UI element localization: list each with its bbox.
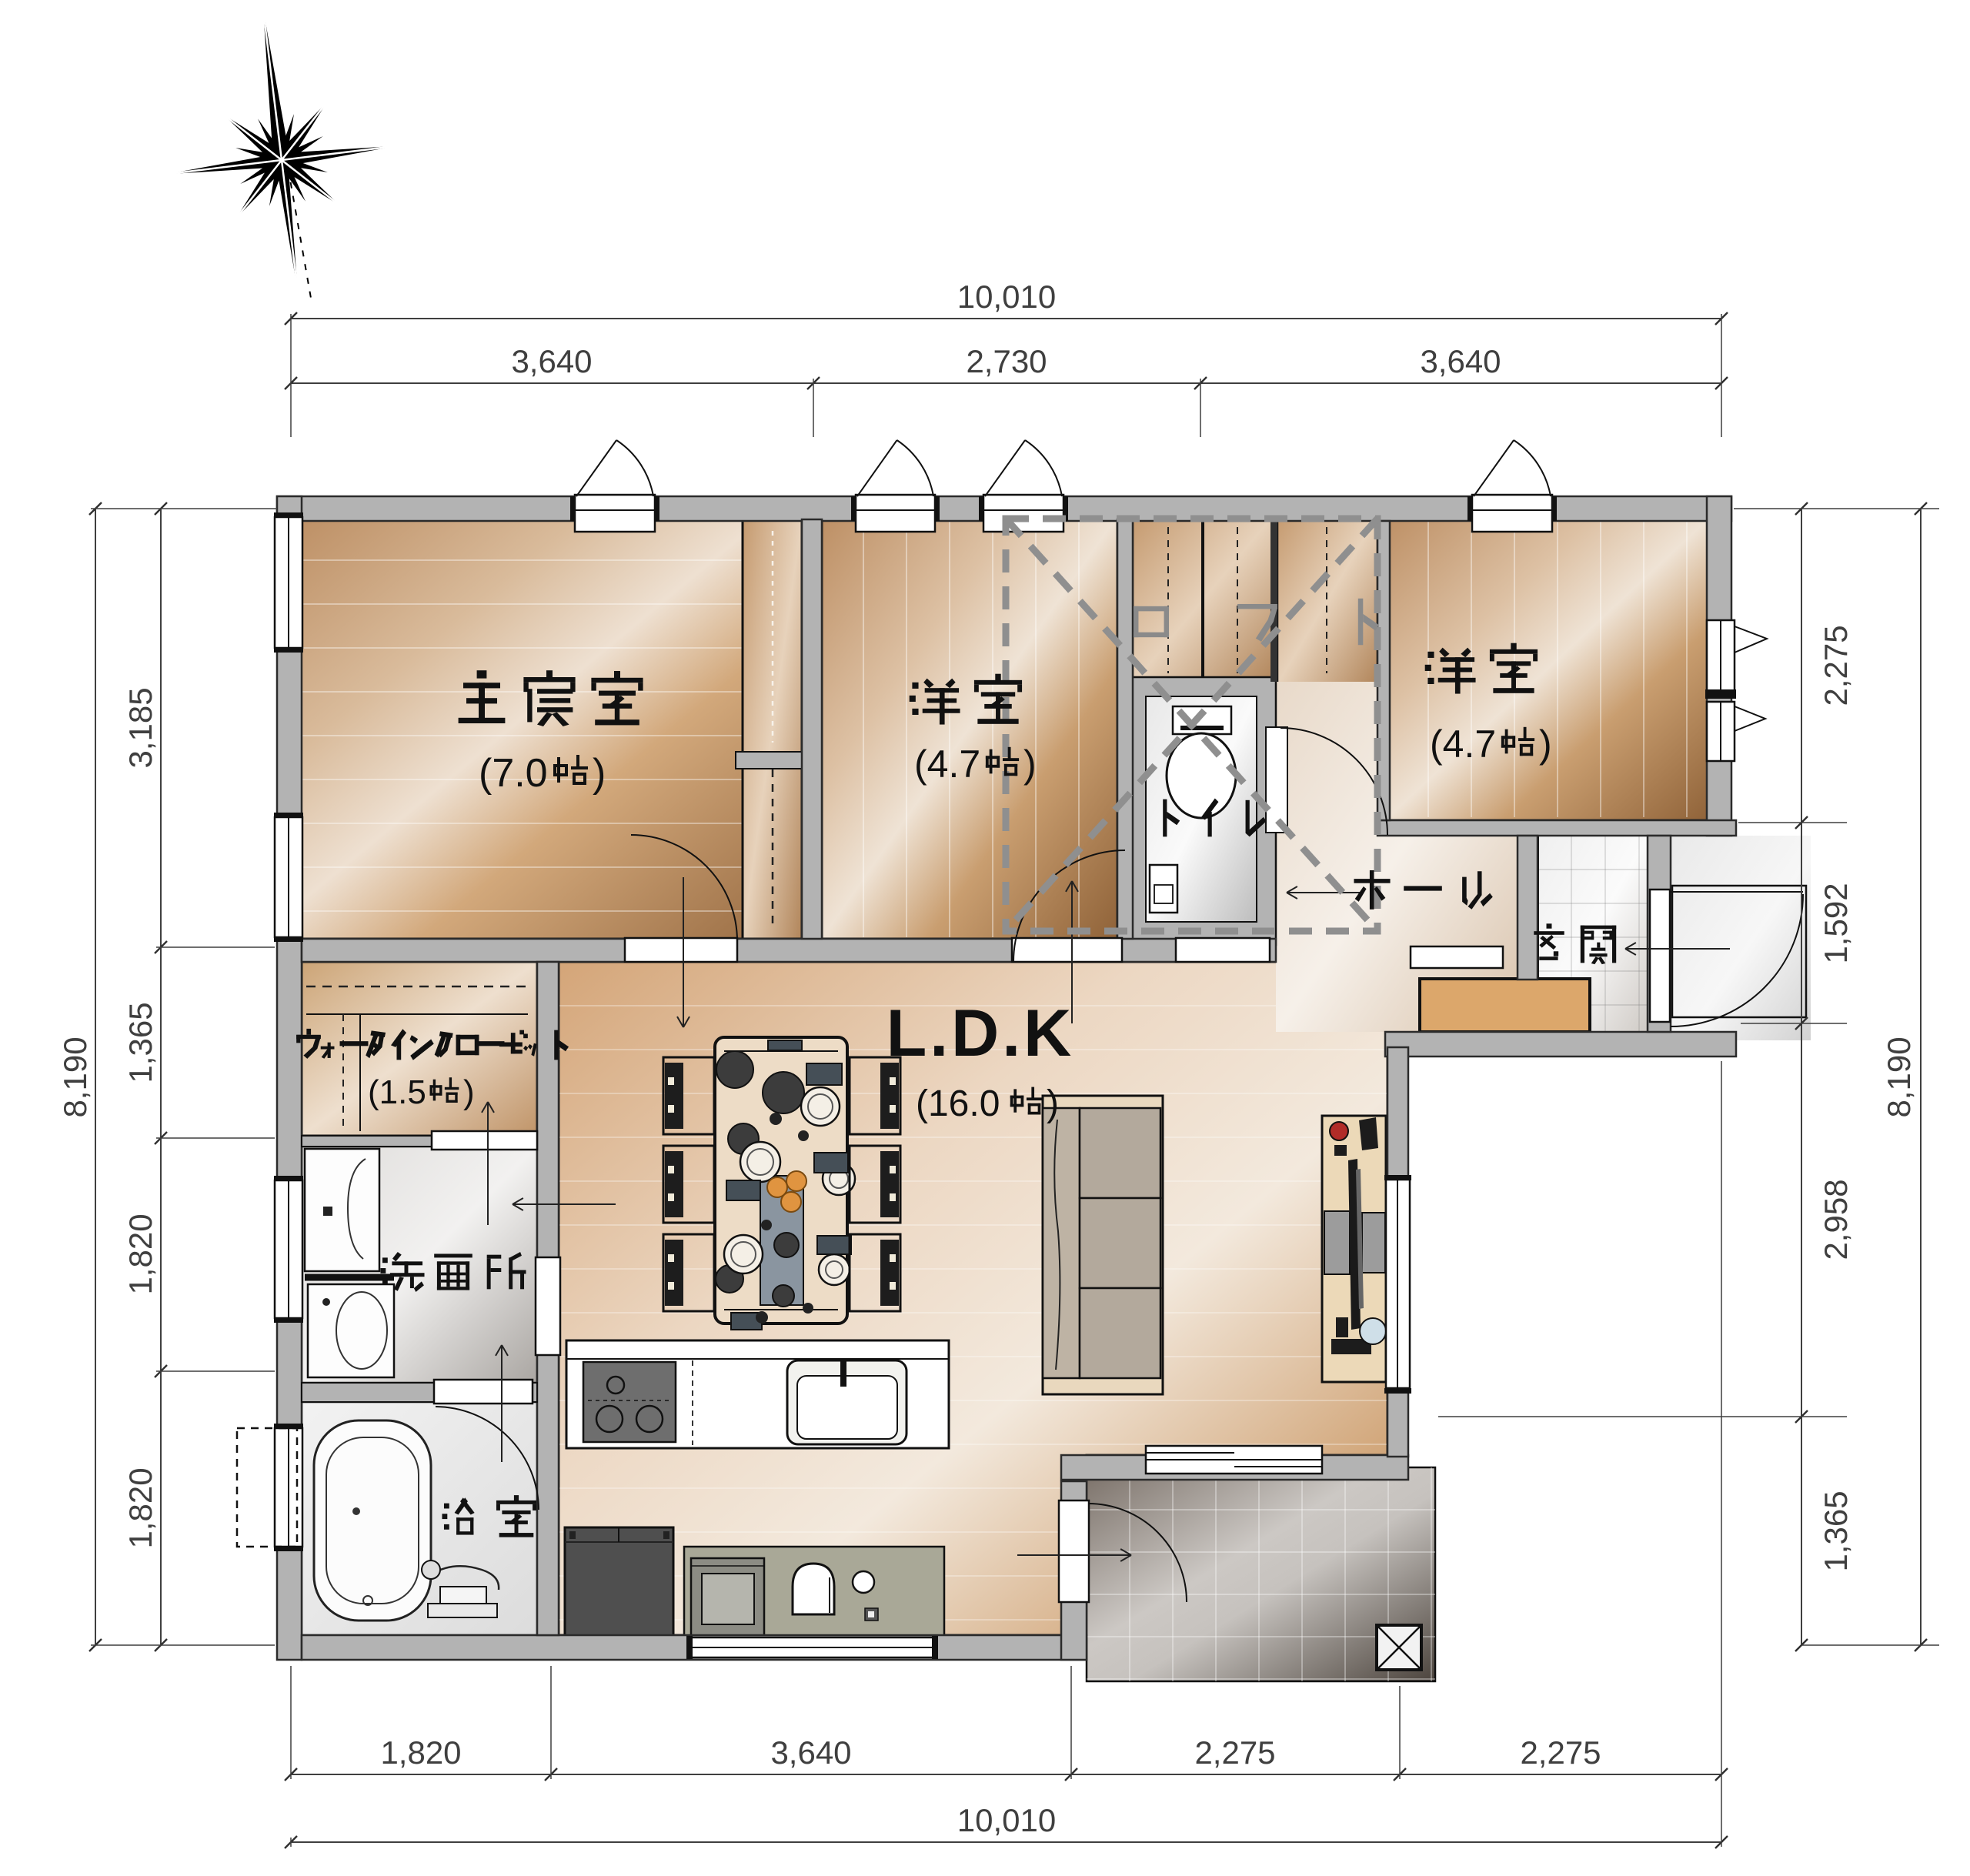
svg-text:2,275: 2,275 [1818, 625, 1854, 706]
svg-text:1,820: 1,820 [380, 1734, 461, 1771]
svg-text:8,190: 8,190 [57, 1036, 93, 1117]
svg-text:1,592: 1,592 [1818, 883, 1854, 963]
svg-text:3,640: 3,640 [511, 343, 592, 379]
svg-text:(4.7: (4.7 [914, 743, 980, 786]
svg-text:2,275: 2,275 [1520, 1734, 1601, 1771]
svg-text:3,640: 3,640 [770, 1734, 851, 1771]
svg-text:L.D.K: L.D.K [886, 996, 1075, 1070]
svg-text:): ) [463, 1073, 475, 1111]
svg-text:3,640: 3,640 [1420, 343, 1501, 379]
svg-text:2,958: 2,958 [1818, 1179, 1854, 1260]
svg-text:10,010: 10,010 [957, 1802, 1056, 1838]
svg-text:3,185: 3,185 [122, 687, 159, 768]
svg-text:1,365: 1,365 [122, 1002, 159, 1083]
svg-text:): ) [1047, 1083, 1059, 1124]
svg-text:8,190: 8,190 [1881, 1036, 1917, 1117]
svg-text:): ) [593, 751, 606, 796]
svg-text:10,010: 10,010 [957, 279, 1056, 315]
svg-text:(7.0: (7.0 [479, 751, 548, 796]
svg-text:(16.0: (16.0 [916, 1083, 1000, 1124]
svg-text:2,730: 2,730 [966, 343, 1047, 379]
svg-text:(1.5: (1.5 [368, 1073, 426, 1111]
svg-text:2,275: 2,275 [1194, 1734, 1275, 1771]
svg-text:(4.7: (4.7 [1430, 723, 1496, 766]
svg-text:): ) [1539, 723, 1552, 766]
svg-text:1,820: 1,820 [122, 1467, 159, 1548]
svg-text:): ) [1023, 743, 1037, 786]
svg-text:1,365: 1,365 [1818, 1490, 1854, 1571]
svg-text:1,820: 1,820 [122, 1213, 159, 1294]
